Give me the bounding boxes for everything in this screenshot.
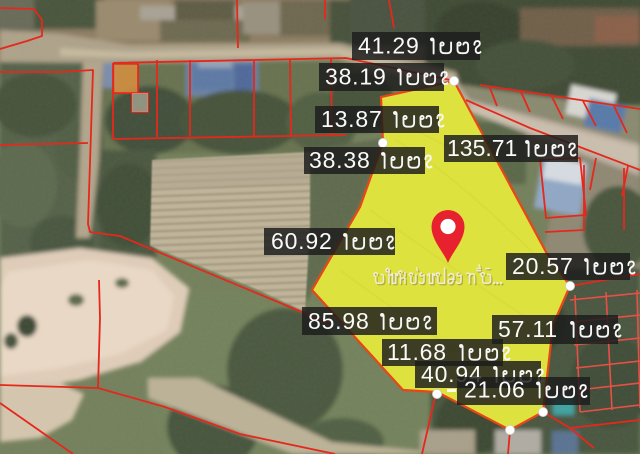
svg-text:20.57: 20.57	[512, 253, 574, 279]
svg-text:41.29: 41.29	[358, 33, 420, 59]
svg-text:57.11: 57.11	[498, 316, 558, 342]
svg-text:38.19: 38.19	[325, 64, 387, 90]
svg-text:21.06: 21.06	[464, 377, 526, 403]
svg-text:13.87: 13.87	[321, 106, 383, 132]
svg-text:135.71: 135.71	[447, 135, 517, 161]
svg-text:60.92: 60.92	[271, 228, 333, 254]
svg-text:38.38: 38.38	[309, 147, 371, 173]
svg-text:85.98: 85.98	[308, 308, 370, 334]
